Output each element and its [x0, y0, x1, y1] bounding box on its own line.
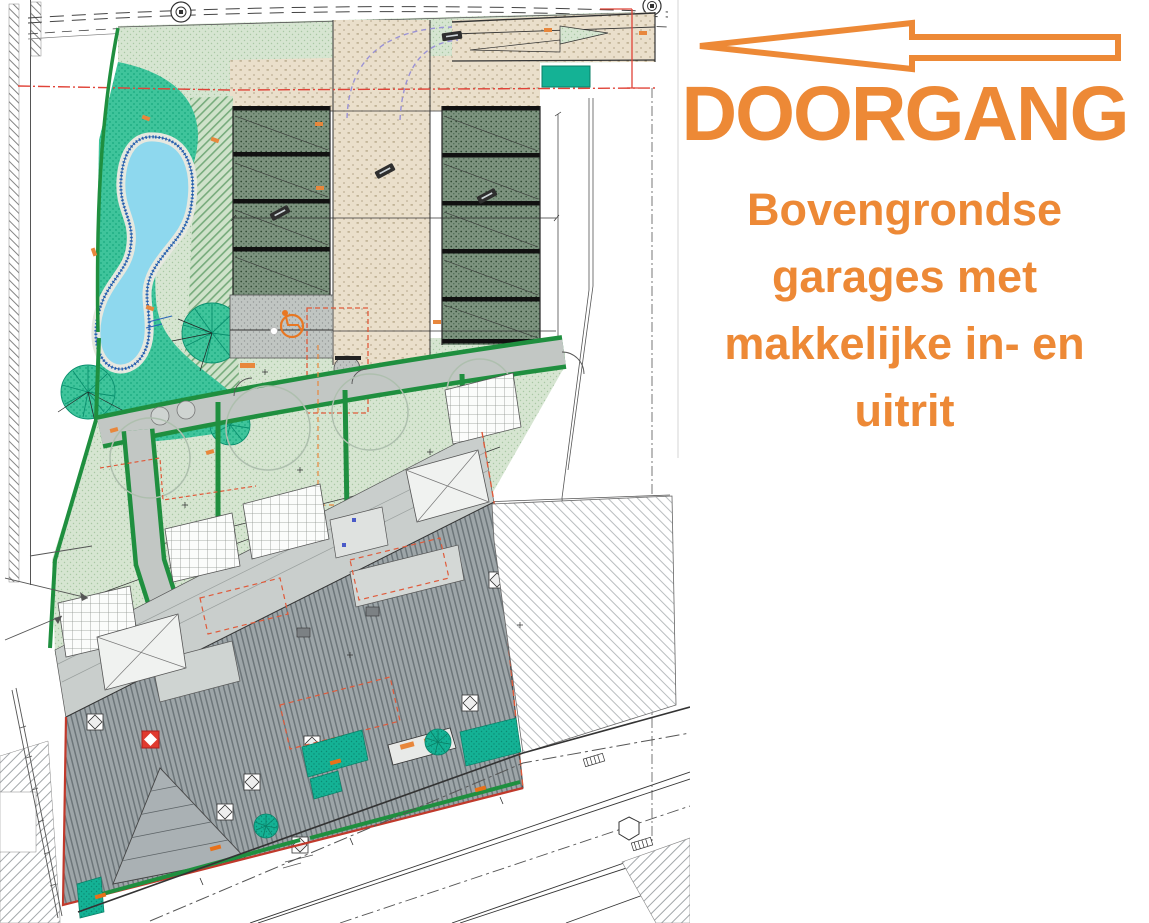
annotation-subtitle: Bovengrondse garages met makkelijke in- …	[660, 176, 1149, 444]
subtitle-line-4: uitrit	[660, 377, 1149, 444]
garage-boxes-right	[442, 106, 540, 345]
site-plan-drawing	[0, 0, 690, 923]
doorgang-arrow-icon	[694, 14, 1124, 78]
subtitle-line-2: garages met	[660, 243, 1149, 310]
manhole-icon	[619, 817, 639, 840]
teal-planting-strip	[542, 66, 590, 87]
red-roof-marker	[142, 731, 159, 748]
neighbor-building	[492, 496, 676, 753]
doorgang-heading: DOORGANG	[660, 76, 1149, 153]
left-survey-band	[9, 0, 41, 585]
survey-marker-icon	[171, 2, 191, 22]
annotation-panel: DOORGANG Bovengrondse garages met makkel…	[660, 0, 1149, 923]
subtitle-line-3: makkelijke in- en	[660, 310, 1149, 377]
garage-boxes-left	[233, 106, 330, 300]
screenshot-root: DOORGANG Bovengrondse garages met makkel…	[0, 0, 1149, 923]
subtitle-line-1: Bovengrondse	[660, 176, 1149, 243]
